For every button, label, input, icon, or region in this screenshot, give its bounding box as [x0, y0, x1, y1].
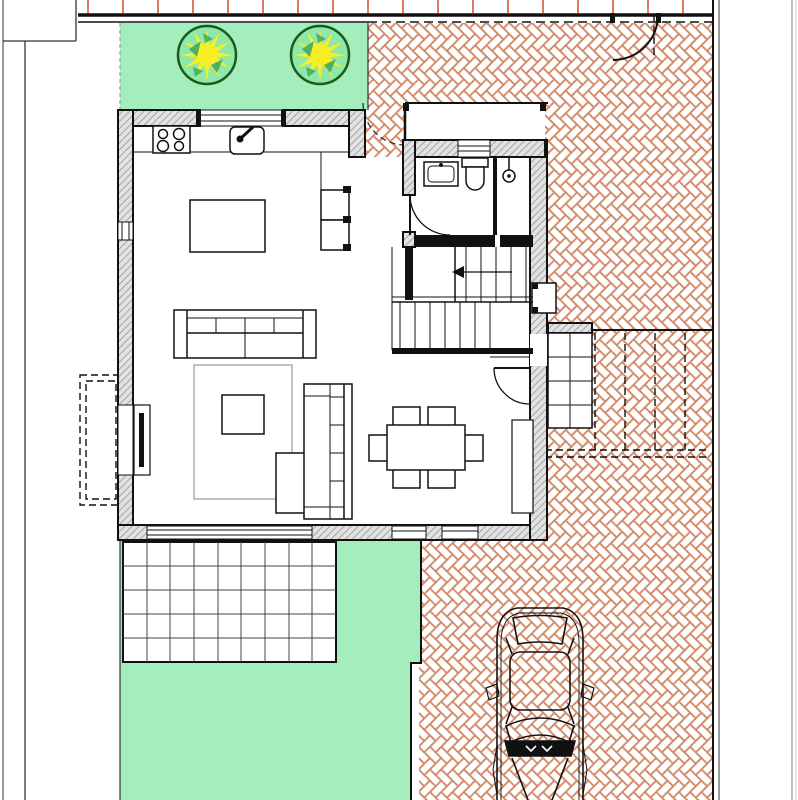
lawn-bottom-lower: [120, 663, 411, 800]
floor-plan-drawing: [0, 0, 798, 800]
bathroom-west-wall-upper: [403, 140, 415, 195]
south-door-glass-2: [442, 526, 478, 539]
coffee-table: [222, 395, 264, 434]
bathroom-south-wall-west: [415, 235, 495, 247]
south-door-glass-1: [392, 526, 426, 539]
washbasin: [424, 162, 458, 186]
kitchen-cabinet: [321, 186, 351, 251]
south-window-large: [147, 526, 312, 539]
stove: [153, 126, 190, 153]
tree-1: [178, 26, 236, 84]
balcony-projection: [80, 375, 122, 505]
fence-ticks: [88, 0, 683, 13]
shower-partition: [493, 157, 497, 235]
side-table: [276, 453, 305, 513]
paving-drive-upper: [421, 540, 713, 663]
sofa-large: [174, 310, 316, 358]
paving-drive-lower: [419, 663, 713, 800]
dining-table: [387, 425, 465, 470]
kitchen-window: [196, 110, 286, 126]
entry-porch: [405, 103, 545, 143]
paving-top: [368, 23, 713, 110]
flue-box: [532, 283, 556, 313]
tree-2: [291, 26, 349, 84]
closet-west-wall: [405, 247, 413, 300]
car-cowl: [505, 741, 575, 756]
kitchen-east-wall: [349, 110, 365, 157]
floor-plan-canvas: [0, 0, 798, 800]
west-window-living: [118, 405, 150, 475]
bathroom-window: [458, 140, 490, 157]
kitchen-island: [190, 200, 265, 252]
east-sliding-door: [512, 420, 533, 513]
west-window-small: [118, 222, 133, 240]
bathroom-south-wall-east: [500, 235, 533, 247]
patio-tiles: [123, 542, 336, 662]
side-entrance-steps: [548, 323, 592, 428]
kitchen-sink: [230, 127, 264, 154]
sofa-small: [304, 384, 352, 519]
